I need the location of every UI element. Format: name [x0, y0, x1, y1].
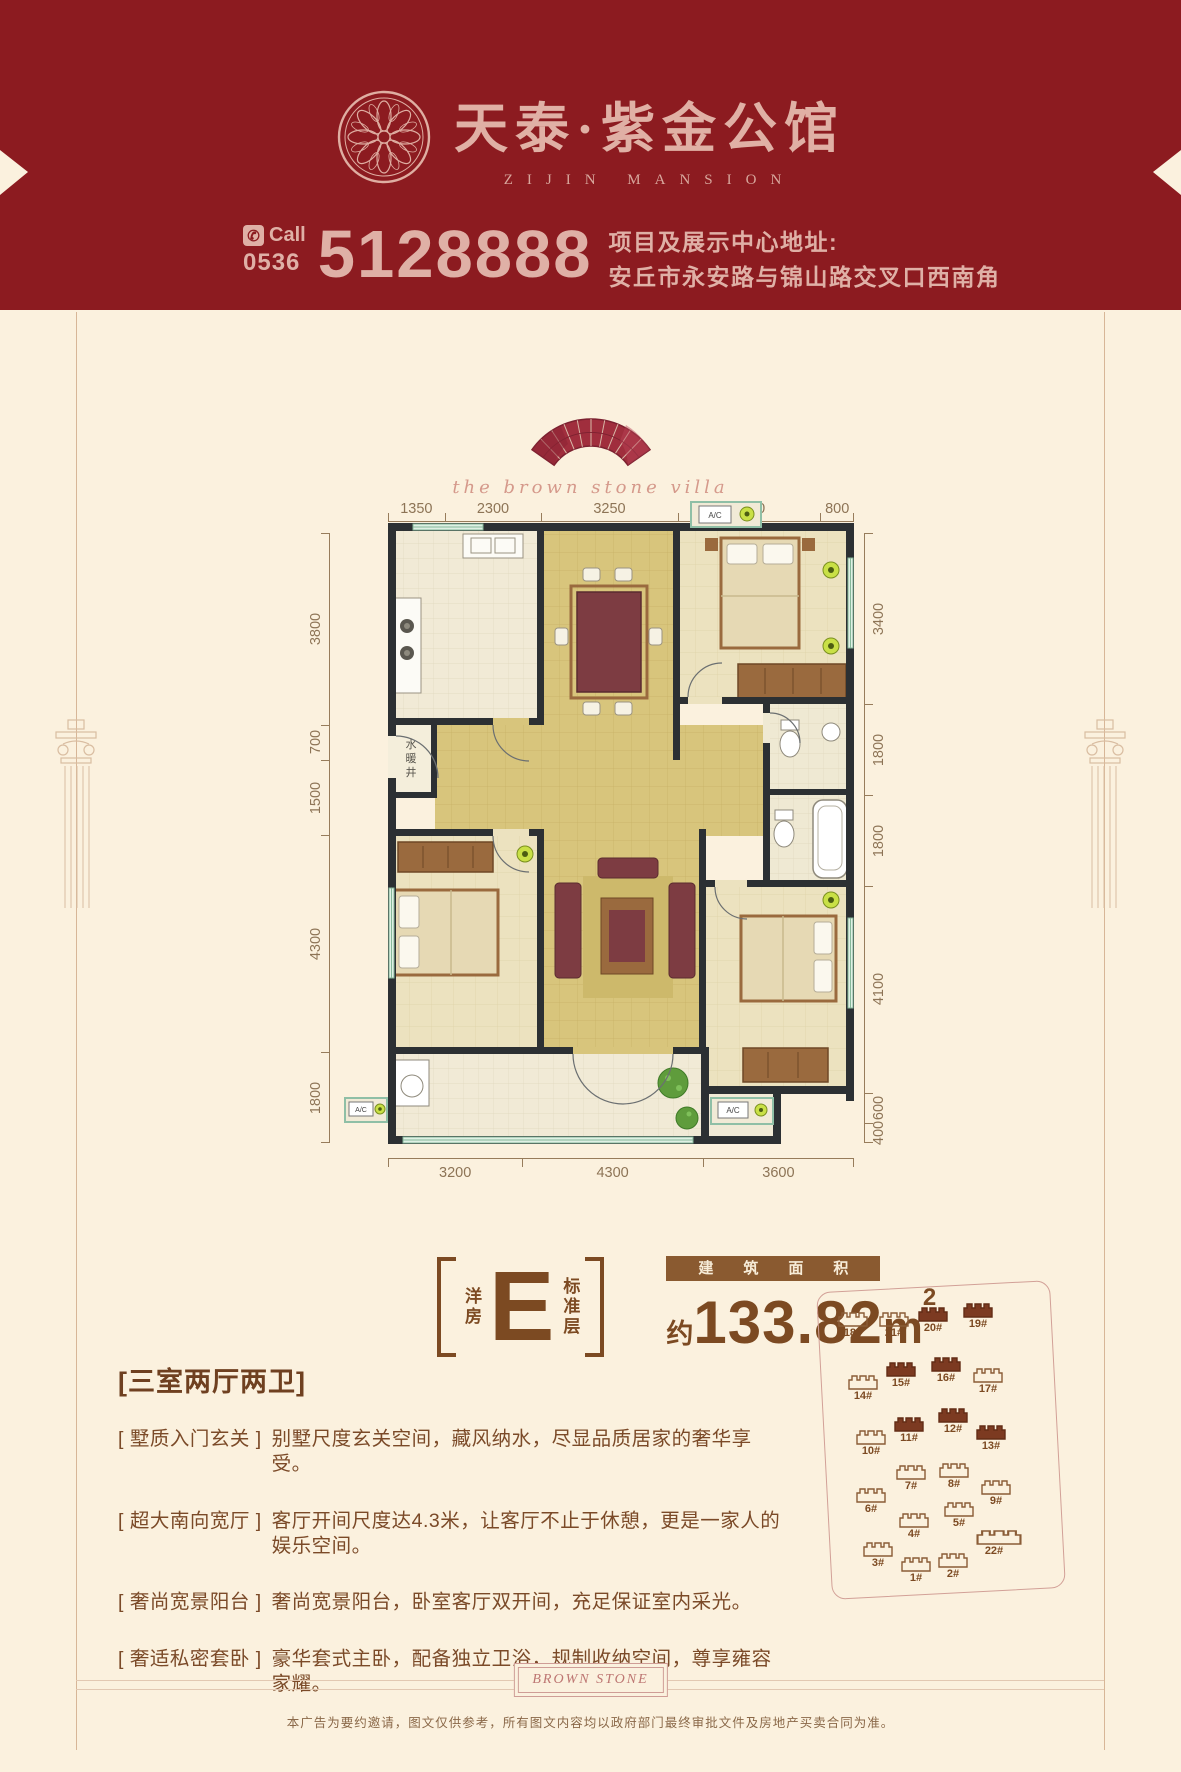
building-label: 18#: [835, 1327, 871, 1339]
site-plan-building: 21#: [876, 1311, 912, 1339]
building-label: 10#: [853, 1445, 889, 1457]
building-icon: [901, 1556, 931, 1572]
dims-left: 3800700150043001800: [302, 533, 330, 1143]
brick-arch-icon: [516, 396, 666, 472]
svg-text:井: 井: [406, 765, 417, 779]
bracket-right: [585, 1257, 604, 1357]
building-icon: [894, 1416, 924, 1432]
ac-label: A/C: [355, 1107, 367, 1114]
building-label: 15#: [883, 1377, 919, 1389]
ac-unit-bottom-left: A/C: [345, 1098, 387, 1122]
ac-label: A/C: [726, 1106, 740, 1115]
site-plan-building: 17#: [970, 1367, 1006, 1395]
site-plan-building: 1#: [898, 1556, 934, 1584]
corridor: [435, 725, 767, 836]
building-icon: [931, 1356, 961, 1372]
ac-unit-top: A/C: [691, 502, 761, 527]
stamp-text: BROWN STONE: [517, 1667, 663, 1693]
building-icon: [973, 1367, 1003, 1383]
dimension-segment: 400: [864, 1123, 892, 1143]
site-plan-building: 10#: [853, 1429, 889, 1457]
dims-right: 3400180018004100600400: [864, 533, 892, 1143]
dimension-segment: 3400: [864, 533, 892, 704]
dimension-segment: 1500: [302, 760, 330, 836]
site-plan-building: 19#: [960, 1302, 996, 1330]
unit-letter: E: [489, 1266, 552, 1346]
shaft-label: 水 暖 井: [406, 738, 417, 779]
features-section: [三室两厅两卫] [ 墅质入门玄关 ] 别墅尺度玄关空间，藏风纳水，尽显品质居家…: [118, 1360, 786, 1728]
svg-text:暖: 暖: [406, 752, 417, 765]
building-icon: [981, 1479, 1011, 1495]
site-plan-building: 7#: [893, 1464, 929, 1492]
site-plan-building: 12#: [935, 1407, 971, 1435]
site-plan-building: 13#: [973, 1424, 1009, 1452]
site-plan-building: 22#: [976, 1529, 1012, 1557]
site-plan-building: 2#: [935, 1552, 971, 1580]
unit-type-left: 洋房: [459, 1287, 484, 1327]
header-banner: 天泰·紫金公馆 ZIJIN MANSION ✆ Call 0536 512888…: [0, 0, 1181, 310]
feature-text: 奢尚宽景阳台，卧室客厅双开间，充足保证室内采光。: [272, 1590, 752, 1615]
building-icon: [939, 1462, 969, 1478]
call-label: Call: [269, 224, 306, 247]
building-label: 6#: [853, 1503, 889, 1515]
building-label: 20#: [915, 1322, 951, 1334]
building-label: 4#: [896, 1528, 932, 1540]
ac-unit-bottom-right: A/C: [711, 1098, 773, 1124]
features-list: [ 墅质入门玄关 ] 别墅尺度玄关空间，藏风纳水，尽显品质居家的奢华享受。 [ …: [118, 1427, 786, 1697]
master-bed: [741, 916, 836, 1082]
building-label: 22#: [976, 1545, 1012, 1557]
dimension-segment: 3800: [302, 533, 330, 725]
dimension-segment: 4100: [864, 886, 892, 1093]
building-label: 13#: [973, 1440, 1009, 1452]
frame-line-right: [1104, 312, 1105, 1750]
bed-left: [393, 842, 498, 975]
building-icon: [899, 1512, 929, 1528]
dimension-segment: 1800: [864, 795, 892, 886]
building-icon: [938, 1552, 968, 1568]
building-label: 17#: [970, 1383, 1006, 1395]
feature-item: [ 墅质入门玄关 ] 别墅尺度玄关空间，藏风纳水，尽显品质居家的奢华享受。: [118, 1427, 786, 1478]
frame-line-left: [76, 312, 77, 1750]
emblem-block: the brown stone villa: [0, 396, 1181, 498]
unit-type-group: 洋房 E 标准层: [437, 1257, 604, 1357]
site-plan-building: 8#: [936, 1462, 972, 1490]
feature-text: 别墅尺度玄关空间，藏风纳水，尽显品质居家的奢华享受。: [272, 1427, 786, 1478]
building-icon: [879, 1311, 909, 1327]
feature-item: [ 奢尚宽景阳台 ] 奢尚宽景阳台，卧室客厅双开间，充足保证室内采光。: [118, 1590, 786, 1615]
site-plan-building: 15#: [883, 1361, 919, 1389]
ac-label: A/C: [708, 511, 722, 520]
unit-type-right: 标准层: [557, 1277, 582, 1337]
brand-name-en: ZIJIN MANSION: [454, 172, 845, 189]
dimension-segment: 1800: [302, 1052, 330, 1143]
building-label: 3#: [860, 1557, 896, 1569]
building-label: 16#: [928, 1372, 964, 1384]
site-plan-building: 6#: [853, 1487, 889, 1515]
building-label: 19#: [960, 1318, 996, 1330]
building-icon: [886, 1361, 916, 1377]
building-label: 1#: [898, 1572, 934, 1584]
address-block: 项目及展示中心地址: 安丘市永安路与锦山路交叉口西南角: [609, 224, 1001, 294]
svg-text:水: 水: [406, 738, 417, 751]
site-plan-building: 5#: [941, 1501, 977, 1529]
phone-icon: ✆: [243, 225, 264, 246]
floor-plan: A/C A/C A/C 水 暖 井: [343, 498, 855, 1163]
site-plan-building: 3#: [860, 1541, 896, 1569]
brand-name-cn: 天泰·紫金公馆: [454, 84, 845, 163]
site-plan-building: 4#: [896, 1512, 932, 1540]
building-label: 2#: [935, 1568, 971, 1580]
building-label: 14#: [845, 1390, 881, 1402]
feature-text: 客厅开间尺度达4.3米，让客厅不止于休憩，更是一家人的娱乐空间。: [272, 1509, 786, 1560]
brand-block: 天泰·紫金公馆 ZIJIN MANSION: [0, 84, 1181, 189]
phone-area-code: 0536: [243, 249, 306, 277]
building-icon: [856, 1487, 886, 1503]
feature-item: [ 超大南向宽厅 ] 客厅开间尺度达4.3米，让客厅不止于休憩，更是一家人的娱乐…: [118, 1509, 786, 1560]
building-label: 21#: [876, 1327, 912, 1339]
address-title: 项目及展示中心地址:: [609, 225, 1001, 260]
column-ornament-right-icon: [1083, 716, 1127, 911]
site-plan-building: 18#: [835, 1311, 871, 1339]
brown-stone-stamp: BROWN STONE: [513, 1663, 667, 1697]
building-label: 11#: [891, 1432, 927, 1444]
site-plan-building: 11#: [891, 1416, 927, 1444]
building-icon: [838, 1311, 868, 1327]
disclaimer-text: 本广告为要约邀请，图文仅供参考，所有图文内容均以政府部门最终审批文件及房地产买卖…: [0, 1712, 1181, 1731]
call-block: ✆ Call 0536: [243, 224, 306, 277]
site-plan-building: 14#: [845, 1374, 881, 1402]
dimension-segment: 4300: [302, 835, 330, 1052]
building-label: 7#: [893, 1480, 929, 1492]
building-icon: [856, 1429, 886, 1445]
area-prefix: 约: [666, 1312, 693, 1351]
phone-number: 5128888: [318, 224, 593, 286]
feature-tag: [ 墅质入门玄关 ]: [118, 1427, 262, 1478]
features-heading: [三室两厅两卫]: [118, 1360, 786, 1399]
site-plan: 18# 21# 20#: [818, 1276, 1068, 1606]
building-label: 8#: [936, 1478, 972, 1490]
dimension-segment: 1800: [864, 704, 892, 795]
building-icon: [896, 1464, 926, 1480]
building-icon: [848, 1374, 878, 1390]
emblem-script-text: the brown stone villa: [0, 477, 1181, 498]
building-icon: [976, 1529, 1022, 1545]
poster-page: 天泰·紫金公馆 ZIJIN MANSION ✆ Call 0536 512888…: [0, 0, 1181, 1772]
building-label: 5#: [941, 1517, 977, 1529]
building-label: 12#: [935, 1423, 971, 1435]
building-icon: [944, 1501, 974, 1517]
feature-tag: [ 奢尚宽景阳台 ]: [118, 1590, 262, 1615]
building-icon: [938, 1407, 968, 1423]
site-plan-building: 9#: [978, 1479, 1014, 1507]
address-text: 安丘市永安路与锦山路交叉口西南角: [609, 260, 1001, 295]
site-plan-building: 16#: [928, 1356, 964, 1384]
bracket-left: [437, 1257, 456, 1357]
dimension-segment: 600: [864, 1093, 892, 1123]
feature-tag: [ 超大南向宽厅 ]: [118, 1509, 262, 1560]
building-label: 9#: [978, 1495, 1014, 1507]
brand-logo-medallion-icon: [336, 89, 432, 185]
building-icon: [863, 1541, 893, 1557]
site-plan-building: 20#: [915, 1306, 951, 1334]
building-icon: [976, 1424, 1006, 1440]
building-icon: [918, 1306, 948, 1322]
building-icon: [963, 1302, 993, 1318]
dimension-segment: 700: [302, 725, 330, 760]
column-ornament-left-icon: [54, 716, 98, 911]
contact-block: ✆ Call 0536 5128888 项目及展示中心地址: 安丘市永安路与锦山…: [243, 224, 1001, 294]
